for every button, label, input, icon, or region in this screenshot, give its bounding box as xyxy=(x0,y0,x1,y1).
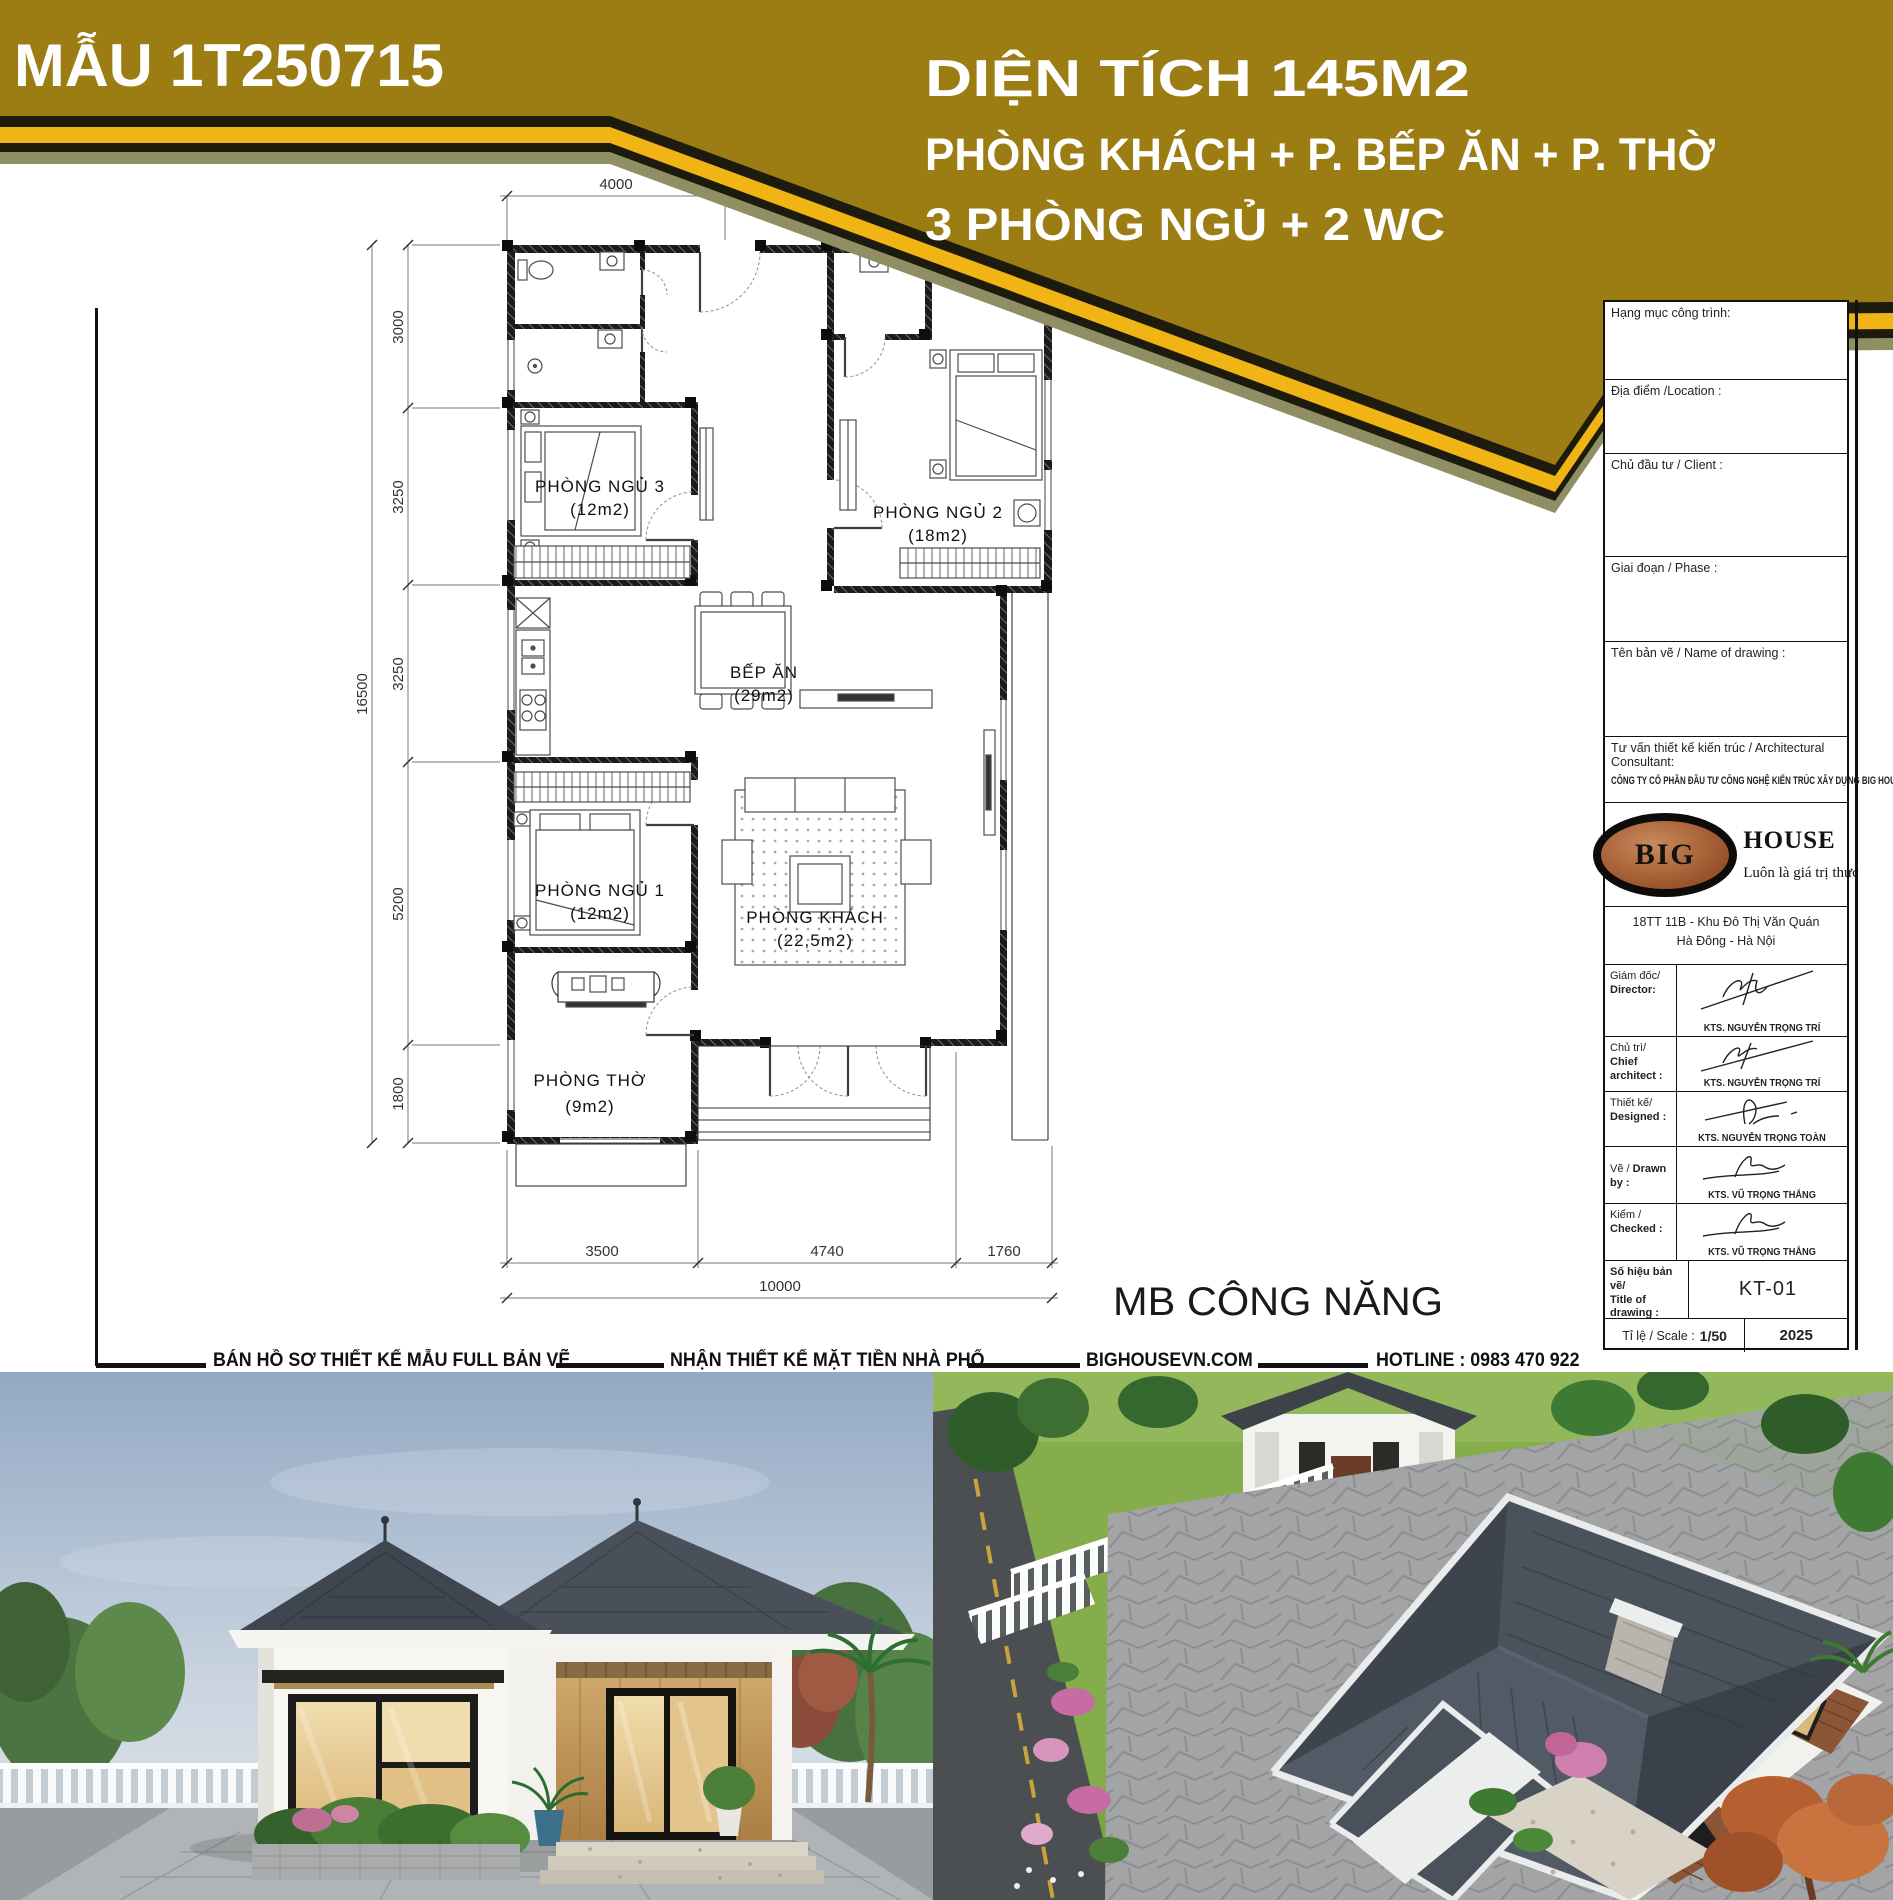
footer-rule-3 xyxy=(968,1363,1080,1368)
title-block: Hạng mục công trình: Địa điểm /Location … xyxy=(1603,300,1849,1350)
field-chu-dau-tu: Chủ đầu tư / Client : xyxy=(1605,454,1847,557)
sig-name: KTS. VŨ TRỌNG THẮNG xyxy=(1687,1246,1837,1258)
scale-row: Tỉ lệ / Scale : 1/50 2025 xyxy=(1605,1319,1847,1352)
footer-rule-2 xyxy=(556,1363,664,1368)
field-label: Giai đoạn / Phase : xyxy=(1611,561,1717,575)
drawing-number-row: Số hiệu bản vẽ/ Title of drawing : KT-01 xyxy=(1605,1261,1847,1319)
program-line1: PHÒNG KHÁCH + P. BẾP ĂN + P. THỜ xyxy=(925,129,1716,180)
logo-tagline: Luôn là giá trị thực xyxy=(1743,865,1859,882)
signature-glyph xyxy=(1695,1039,1825,1073)
signature-glyph xyxy=(1695,967,1825,1013)
room-area-khach: (22,5m2) xyxy=(777,931,853,950)
footer-rule-4 xyxy=(1258,1363,1368,1368)
sig-label1: Thiết kế/ xyxy=(1610,1097,1673,1111)
dim-bottom-2: 1760 xyxy=(987,1243,1020,1260)
company-name: CÔNG TY CỔ PHẦN ĐẦU TƯ CÔNG NGHỆ KIẾN TR… xyxy=(1611,775,1777,787)
field-ten-ban-ve: Tên bản vẽ / Name of drawing : xyxy=(1605,642,1847,737)
sheet-frame-left xyxy=(95,308,98,1366)
dim-left-total: 16500 xyxy=(354,673,371,715)
sig-label1: Giám đốc/ xyxy=(1610,970,1673,984)
consultant-label: Tư vấn thiết kế kiến trúc / Architectura… xyxy=(1611,741,1841,769)
drawing-no-label2: Title of drawing : xyxy=(1610,1294,1685,1322)
logo-house-text: HOUSE xyxy=(1743,827,1859,855)
program-line2: 3 PHÒNG NGỦ + 2 WC xyxy=(925,199,1445,250)
sig-label1: Vẽ / xyxy=(1610,1163,1630,1175)
plan-caption: MB CÔNG NĂNG xyxy=(1113,1279,1443,1324)
dim-bottom-1: 4740 xyxy=(810,1243,843,1260)
sig-name: KTS. NGUYỄN TRỌNG TRÍ xyxy=(1687,1022,1837,1034)
dim-bottom-0: 3500 xyxy=(585,1243,618,1260)
field-dia-diem: Địa điểm /Location : xyxy=(1605,380,1847,454)
room-label-ngu1: PHÒNG NGỦ 1 xyxy=(535,881,665,900)
field-giai-doan: Giai đoạn / Phase : xyxy=(1605,557,1847,642)
field-label: Chủ đầu tư / Client : xyxy=(1611,458,1723,472)
room-label-tho: PHÒNG THỜ xyxy=(534,1071,647,1090)
footer-item-3: BIGHOUSEVN.COM xyxy=(1086,1350,1253,1372)
sig-name: KTS. NGUYỄN TRỌNG TRÍ xyxy=(1687,1077,1837,1089)
render-aerial-view xyxy=(933,1372,1893,1900)
sig-label2: Checked : xyxy=(1610,1223,1673,1237)
sig-row-drawn-by: Vẽ / Drawn by : KTS. VŨ TRỌNG THẮNG xyxy=(1605,1147,1847,1204)
address-row: 18TT 11B - Khu Đô Thị Văn Quán Hà Đông -… xyxy=(1605,907,1847,965)
drawing-no-label1: Số hiệu bản vẽ/ xyxy=(1610,1266,1685,1294)
field-label: Tên bản vẽ / Name of drawing : xyxy=(1611,646,1785,660)
sig-row-director: Giám đốc/ Director: KTS. NGUYỄN TRỌNG TR… xyxy=(1605,965,1847,1037)
consultant-row: Tư vấn thiết kế kiến trúc / Architectura… xyxy=(1605,737,1847,802)
field-label: Địa điểm /Location : xyxy=(1611,384,1721,398)
room-area-bepan: (29m2) xyxy=(734,686,794,705)
room-area-ngu1: (12m2) xyxy=(570,904,630,923)
drawing-number: KT-01 xyxy=(1739,1278,1797,1301)
logo-big-text: BIG xyxy=(1635,838,1696,872)
dim-bottom-total: 10000 xyxy=(759,1278,801,1295)
model-code: MẪU 1T250715 xyxy=(14,32,444,99)
bighouse-logo: BIG HOUSE Luôn là giá trị thực xyxy=(1611,807,1841,902)
signature-glyph xyxy=(1695,1206,1825,1242)
sig-name: KTS. VŨ TRỌNG THẮNG xyxy=(1687,1189,1837,1201)
sig-row-designed: Thiết kế/ Designed : KTS. NGUYỄN TRỌNG T… xyxy=(1605,1092,1847,1147)
sheet-frame-right xyxy=(1855,300,1858,1350)
room-label-bepan: BẾP ĂN xyxy=(730,663,798,682)
dim-left-3: 5200 xyxy=(390,887,407,920)
footer-item-4: HOTLINE : 0983 470 922 xyxy=(1376,1350,1580,1372)
sig-name: KTS. NGUYỄN TRỌNG TOÀN xyxy=(1687,1132,1837,1144)
bighouse-logo-ellipse: BIG xyxy=(1593,813,1737,897)
sig-label2: Designed : xyxy=(1610,1111,1673,1125)
sig-label2: Director: xyxy=(1610,984,1673,998)
sig-label2: Chief architect : xyxy=(1610,1056,1673,1084)
address-line1: 18TT 11B - Khu Đô Thị Văn Quán xyxy=(1611,913,1841,932)
room-area-tho: (9m2) xyxy=(565,1097,614,1116)
sig-row-checked: Kiểm / Checked : KTS. VŨ TRỌNG THẮNG xyxy=(1605,1204,1847,1261)
footer-item-2: NHẬN THIẾT KẾ MẶT TIỀN NHÀ PHỐ xyxy=(670,1350,985,1372)
year-value: 2025 xyxy=(1779,1327,1812,1344)
scale-label: Tỉ lệ / Scale : xyxy=(1622,1329,1694,1343)
logo-row: BIG HOUSE Luôn là giá trị thực xyxy=(1605,802,1847,907)
sig-label1: Chủ trì/ xyxy=(1610,1042,1673,1056)
field-label: Hạng mục công trình: xyxy=(1611,306,1731,320)
footer-item-1: BÁN HỒ SƠ THIẾT KẾ MẪU FULL BẢN VẼ xyxy=(213,1350,570,1372)
drawing-sheet: { "header": { "model_label": "MẪU 1T2507… xyxy=(0,0,1893,1900)
render-front-view xyxy=(0,1372,933,1900)
dim-left-4: 1800 xyxy=(390,1077,407,1110)
signature-glyph xyxy=(1695,1094,1825,1128)
address-line2: Hà Đông - Hà Nội xyxy=(1611,932,1841,951)
signature-glyph xyxy=(1695,1149,1825,1185)
field-hang-muc: Hạng mục công trình: xyxy=(1605,302,1847,380)
area-line: DIỆN TÍCH 145M2 xyxy=(925,49,1470,108)
footer-rule-1 xyxy=(96,1363,206,1368)
scale-value: 1/50 xyxy=(1700,1328,1727,1344)
sig-row-chief-architect: Chủ trì/ Chief architect : KTS. NGUYỄN T… xyxy=(1605,1037,1847,1092)
room-label-khach: PHÒNG KHÁCH xyxy=(746,908,884,927)
sig-label1: Kiểm / xyxy=(1610,1209,1673,1223)
dim-left-2: 3250 xyxy=(390,657,407,690)
